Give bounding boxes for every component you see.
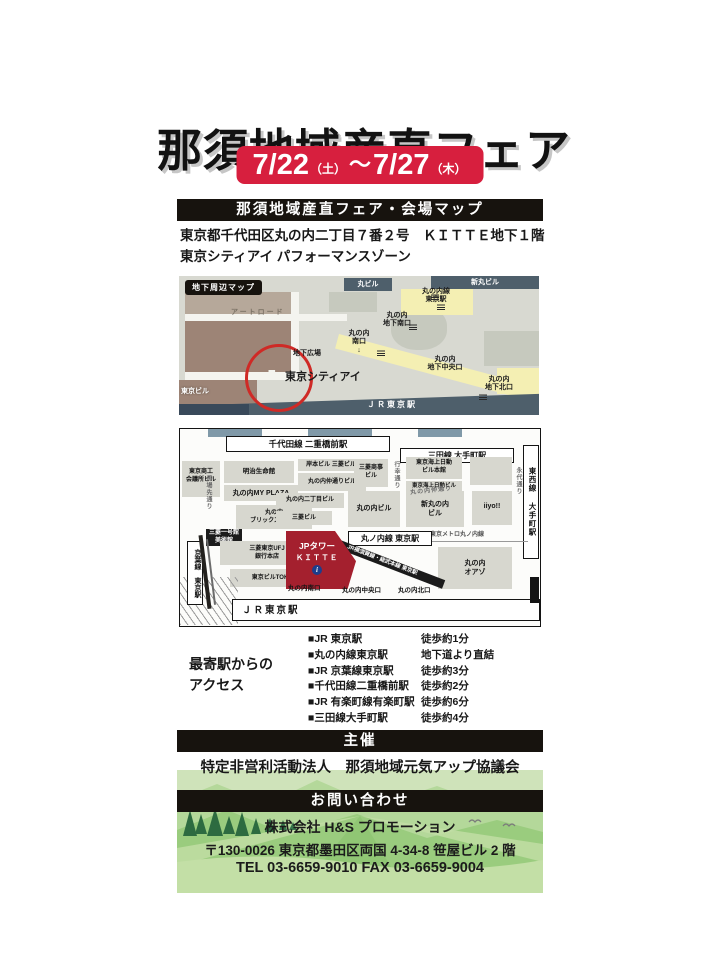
contact-company: 株式会社 H&S プロモーション	[177, 817, 543, 837]
chika-chuo-exit-label: 丸の内 地下中央口	[421, 356, 469, 373]
shoko-building-label: 東京商工 会議所ビル	[182, 469, 220, 484]
underground-map: 丸ビル 新丸ビル 地下周辺マップ アートロード 丸の内線 東京駅 丸の内 地下南…	[179, 276, 539, 415]
date-end-weekday: （木）	[430, 160, 466, 177]
map1-structure	[329, 292, 377, 312]
date-start-weekday: （土）	[310, 160, 346, 177]
eitai-street-label: 永代通り	[514, 467, 523, 523]
access-row: ■丸の内線東京駅地下道より直結	[308, 647, 538, 663]
jr-tokyo-station-label: ＪＲ東京駅	[242, 605, 300, 617]
nichome-building-label: 丸の内二丁目ビル	[276, 497, 344, 505]
map1-structure	[484, 331, 539, 366]
access-row: ■JR 東京駅徒歩約1分	[308, 631, 538, 647]
venue-map-heading: 那須地域産直フェア・会場マップ	[177, 199, 543, 221]
gyoko-street-label: 行幸通り	[392, 461, 401, 505]
stairs-icon	[431, 294, 439, 300]
access-time: 徒歩約4分	[421, 710, 469, 725]
event-flyer: 那須地域産直フェア 7/22（土）～7/27（木） 那須地域産直フェア・会場マッ…	[0, 0, 720, 960]
access-station: ■JR 有楽町線有楽町駅	[308, 696, 415, 708]
chika-kita-exit-label: 丸の内 地下北口	[477, 376, 521, 393]
map1-track-corner	[179, 404, 249, 415]
info-icon: i	[312, 565, 322, 575]
kitte-label: ＫＩＴＴＥ	[286, 553, 348, 562]
access-time: 地下道より直結	[421, 647, 494, 662]
venue-address-line2: 東京シティアイ パフォーマンスゾーン	[180, 247, 545, 268]
map1-title-badge: 地下周辺マップ	[185, 280, 262, 295]
metro-line	[428, 541, 528, 542]
marunouchi-kita-exit-label: 丸の内北口	[398, 587, 431, 595]
organizer-heading: 主催	[177, 730, 543, 752]
marunouchi-chuo-exit-label: 丸の内中央口	[342, 587, 381, 595]
contact-address: 〒130-0026 東京都墨田区両国 4-34-8 笹屋ビル 2 階	[177, 839, 543, 859]
access-row: ■千代田線二重橋前駅徒歩約2分	[308, 678, 538, 694]
venue-address: 東京都千代田区丸の内二丁目７番２号 ＫＩＴＴＥ地下１階 東京シティアイ パフォー…	[180, 226, 545, 268]
access-time: 徒歩約3分	[421, 663, 469, 678]
date-start: 7/22	[253, 150, 309, 180]
date-tilde: ～	[349, 147, 371, 179]
building-block	[470, 457, 512, 485]
content-column: 那須地域産直フェア 7/22（土）～7/27（木） 那須地域産直フェア・会場マッ…	[177, 0, 543, 960]
access-list: ■JR 東京駅徒歩約1分 ■丸の内線東京駅地下道より直結 ■JR 京葉線東京駅徒…	[308, 631, 538, 726]
access-station: ■丸の内線東京駅	[308, 649, 388, 661]
organizer-name: 特定非営利活動法人 那須地域元気アップ協議会	[177, 756, 543, 777]
date-end: 7/27	[373, 150, 429, 180]
access-time: 徒歩約1分	[421, 631, 469, 646]
contact-phone: TEL 03-6659-9010 FAX 03-6659-9004	[177, 860, 543, 876]
track-block	[530, 577, 539, 603]
access-row: ■JR 有楽町線有楽町駅徒歩約6分	[308, 694, 538, 710]
access-station: ■三田線大手町駅	[308, 712, 388, 724]
meiji-seimeikan-label: 明治生命館	[224, 468, 294, 476]
jp-tower-label: JPタワー	[286, 541, 348, 552]
access-row: ■JR 京葉線東京駅徒歩約3分	[308, 663, 538, 679]
stairs-icon	[377, 350, 385, 356]
stairs-icon	[409, 324, 417, 330]
chika-hiroba-label: 地下広場	[293, 350, 321, 358]
marunouchi-line-station-label: 丸ノ内線 東京駅	[348, 531, 432, 546]
map2-moat	[418, 429, 462, 437]
map1-jr-tokyo-label: ＪＲ東京駅	[367, 400, 417, 410]
access-time: 徒歩約6分	[421, 694, 469, 709]
access-heading: 最寄駅からの アクセス	[189, 654, 273, 696]
date-banner: 7/22（土）～7/27（木）	[237, 146, 484, 184]
access-station: ■JR 東京駅	[308, 633, 362, 645]
minami-exit-label: 丸の内 南口 ↓	[343, 330, 375, 355]
access-time: 徒歩約2分	[421, 678, 469, 693]
mitsubishi-building-label: 三菱ビル	[276, 515, 332, 523]
mitsubishi-shoji-label: 三菱商事 ビル	[354, 465, 388, 480]
area-map: 千代田線 二重橋前駅 三田線 大手町駅 東西線 大手町駅 東京商工 会議所ビル …	[179, 428, 541, 627]
babasaki-street-label: 馬場先通り	[204, 475, 213, 529]
tokyo-city-i-label: 東京シティアイ	[285, 371, 361, 384]
art-road-label: アートロード	[231, 309, 285, 317]
access-station: ■千代田線二重橋前駅	[308, 680, 409, 692]
tokio-marine-honkan-label: 東京海上日動 ビル本館	[406, 460, 462, 475]
chiyoda-line-station-label: 千代田線 二重橋前駅	[226, 436, 390, 452]
contact-heading: お問い合わせ	[177, 790, 543, 812]
stairs-icon	[479, 394, 487, 400]
iiyo-label: iiyo!!	[472, 503, 512, 512]
access-row: ■三田線大手町駅徒歩約4分	[308, 710, 538, 726]
marunouchi-minami-exit-label: 丸の内南口	[288, 585, 321, 593]
venue-address-line1: 東京都千代田区丸の内二丁目７番２号 ＫＩＴＴＥ地下１階	[180, 226, 545, 247]
stairs-icon	[437, 304, 445, 310]
marubiru-building-label: 丸の内ビル	[348, 505, 400, 514]
shin-marubiru-building-label: 新丸の内 ビル	[406, 501, 464, 519]
metro-marunouchi-line-label: 東京メトロ丸ノ内線	[430, 532, 484, 540]
tokyo-building-label: 東京ビル	[181, 388, 209, 396]
oazo-label: 丸の内 オアゾ	[438, 560, 512, 578]
access-station: ■JR 京葉線東京駅	[308, 665, 394, 677]
marubiru-band: 丸ビル	[344, 278, 392, 291]
